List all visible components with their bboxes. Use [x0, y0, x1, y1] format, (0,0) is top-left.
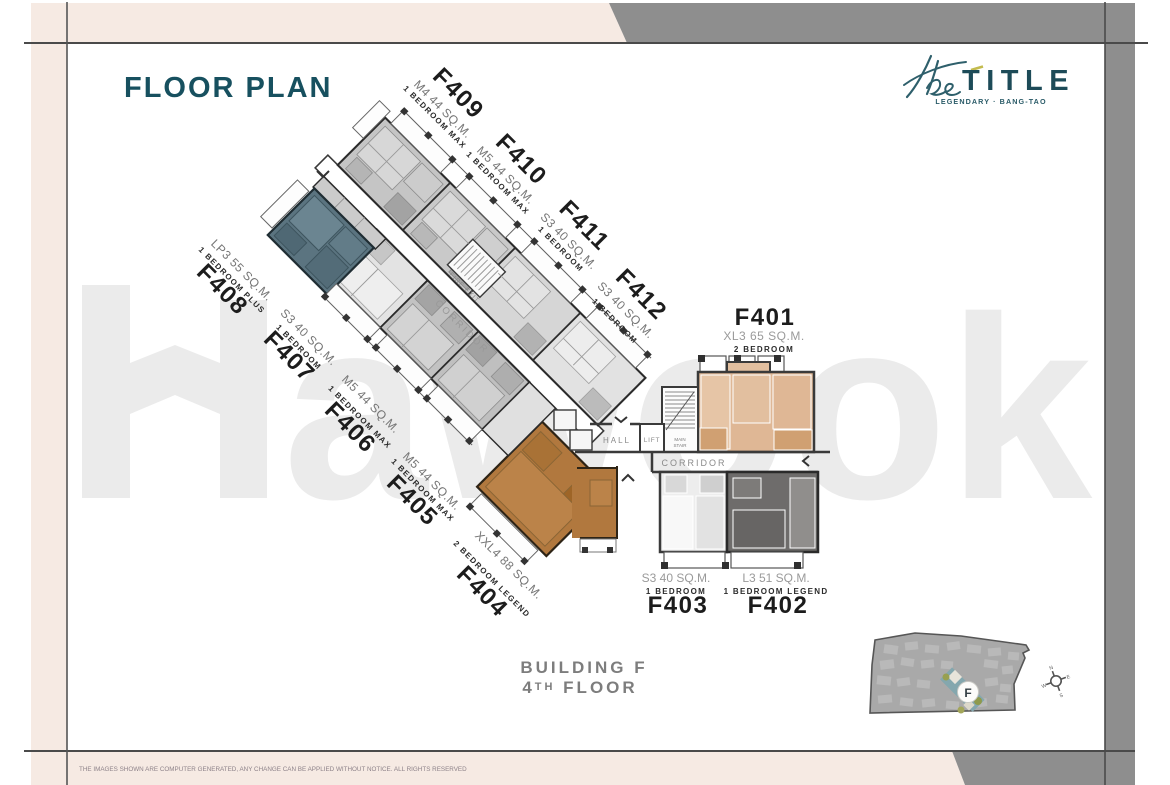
svg-text:LIFT: LIFT — [644, 437, 661, 444]
svg-text:FLOOR PLAN: FLOOR PLAN — [124, 72, 333, 104]
svg-text:F403: F403 — [648, 592, 709, 619]
svg-text:S3 40 SQ.M.: S3 40 SQ.M. — [642, 571, 711, 585]
svg-text:L3 51 SQ.M.: L3 51 SQ.M. — [742, 571, 809, 585]
svg-text:MAIN: MAIN — [674, 437, 685, 442]
svg-text:XL3 65 SQ.M.: XL3 65 SQ.M. — [723, 329, 804, 343]
svg-text:TITLE: TITLE — [962, 65, 1075, 97]
svg-text:F402: F402 — [748, 592, 809, 619]
svg-text:THE IMAGES SHOWN ARE COMPUTER: THE IMAGES SHOWN ARE COMPUTER GENERATED,… — [79, 766, 467, 773]
svg-text:2 BEDROOM: 2 BEDROOM — [734, 345, 794, 354]
svg-text:F401: F401 — [735, 304, 796, 331]
svg-text:CORRIDOR: CORRIDOR — [662, 458, 727, 468]
svg-text:LEGENDARY · BANG-TAO: LEGENDARY · BANG-TAO — [935, 97, 1046, 106]
svg-text:BUILDING F: BUILDING F — [520, 658, 647, 677]
svg-text:F: F — [964, 686, 971, 700]
svg-text:HALL: HALL — [603, 436, 631, 445]
svg-text:STAIR: STAIR — [674, 443, 688, 448]
